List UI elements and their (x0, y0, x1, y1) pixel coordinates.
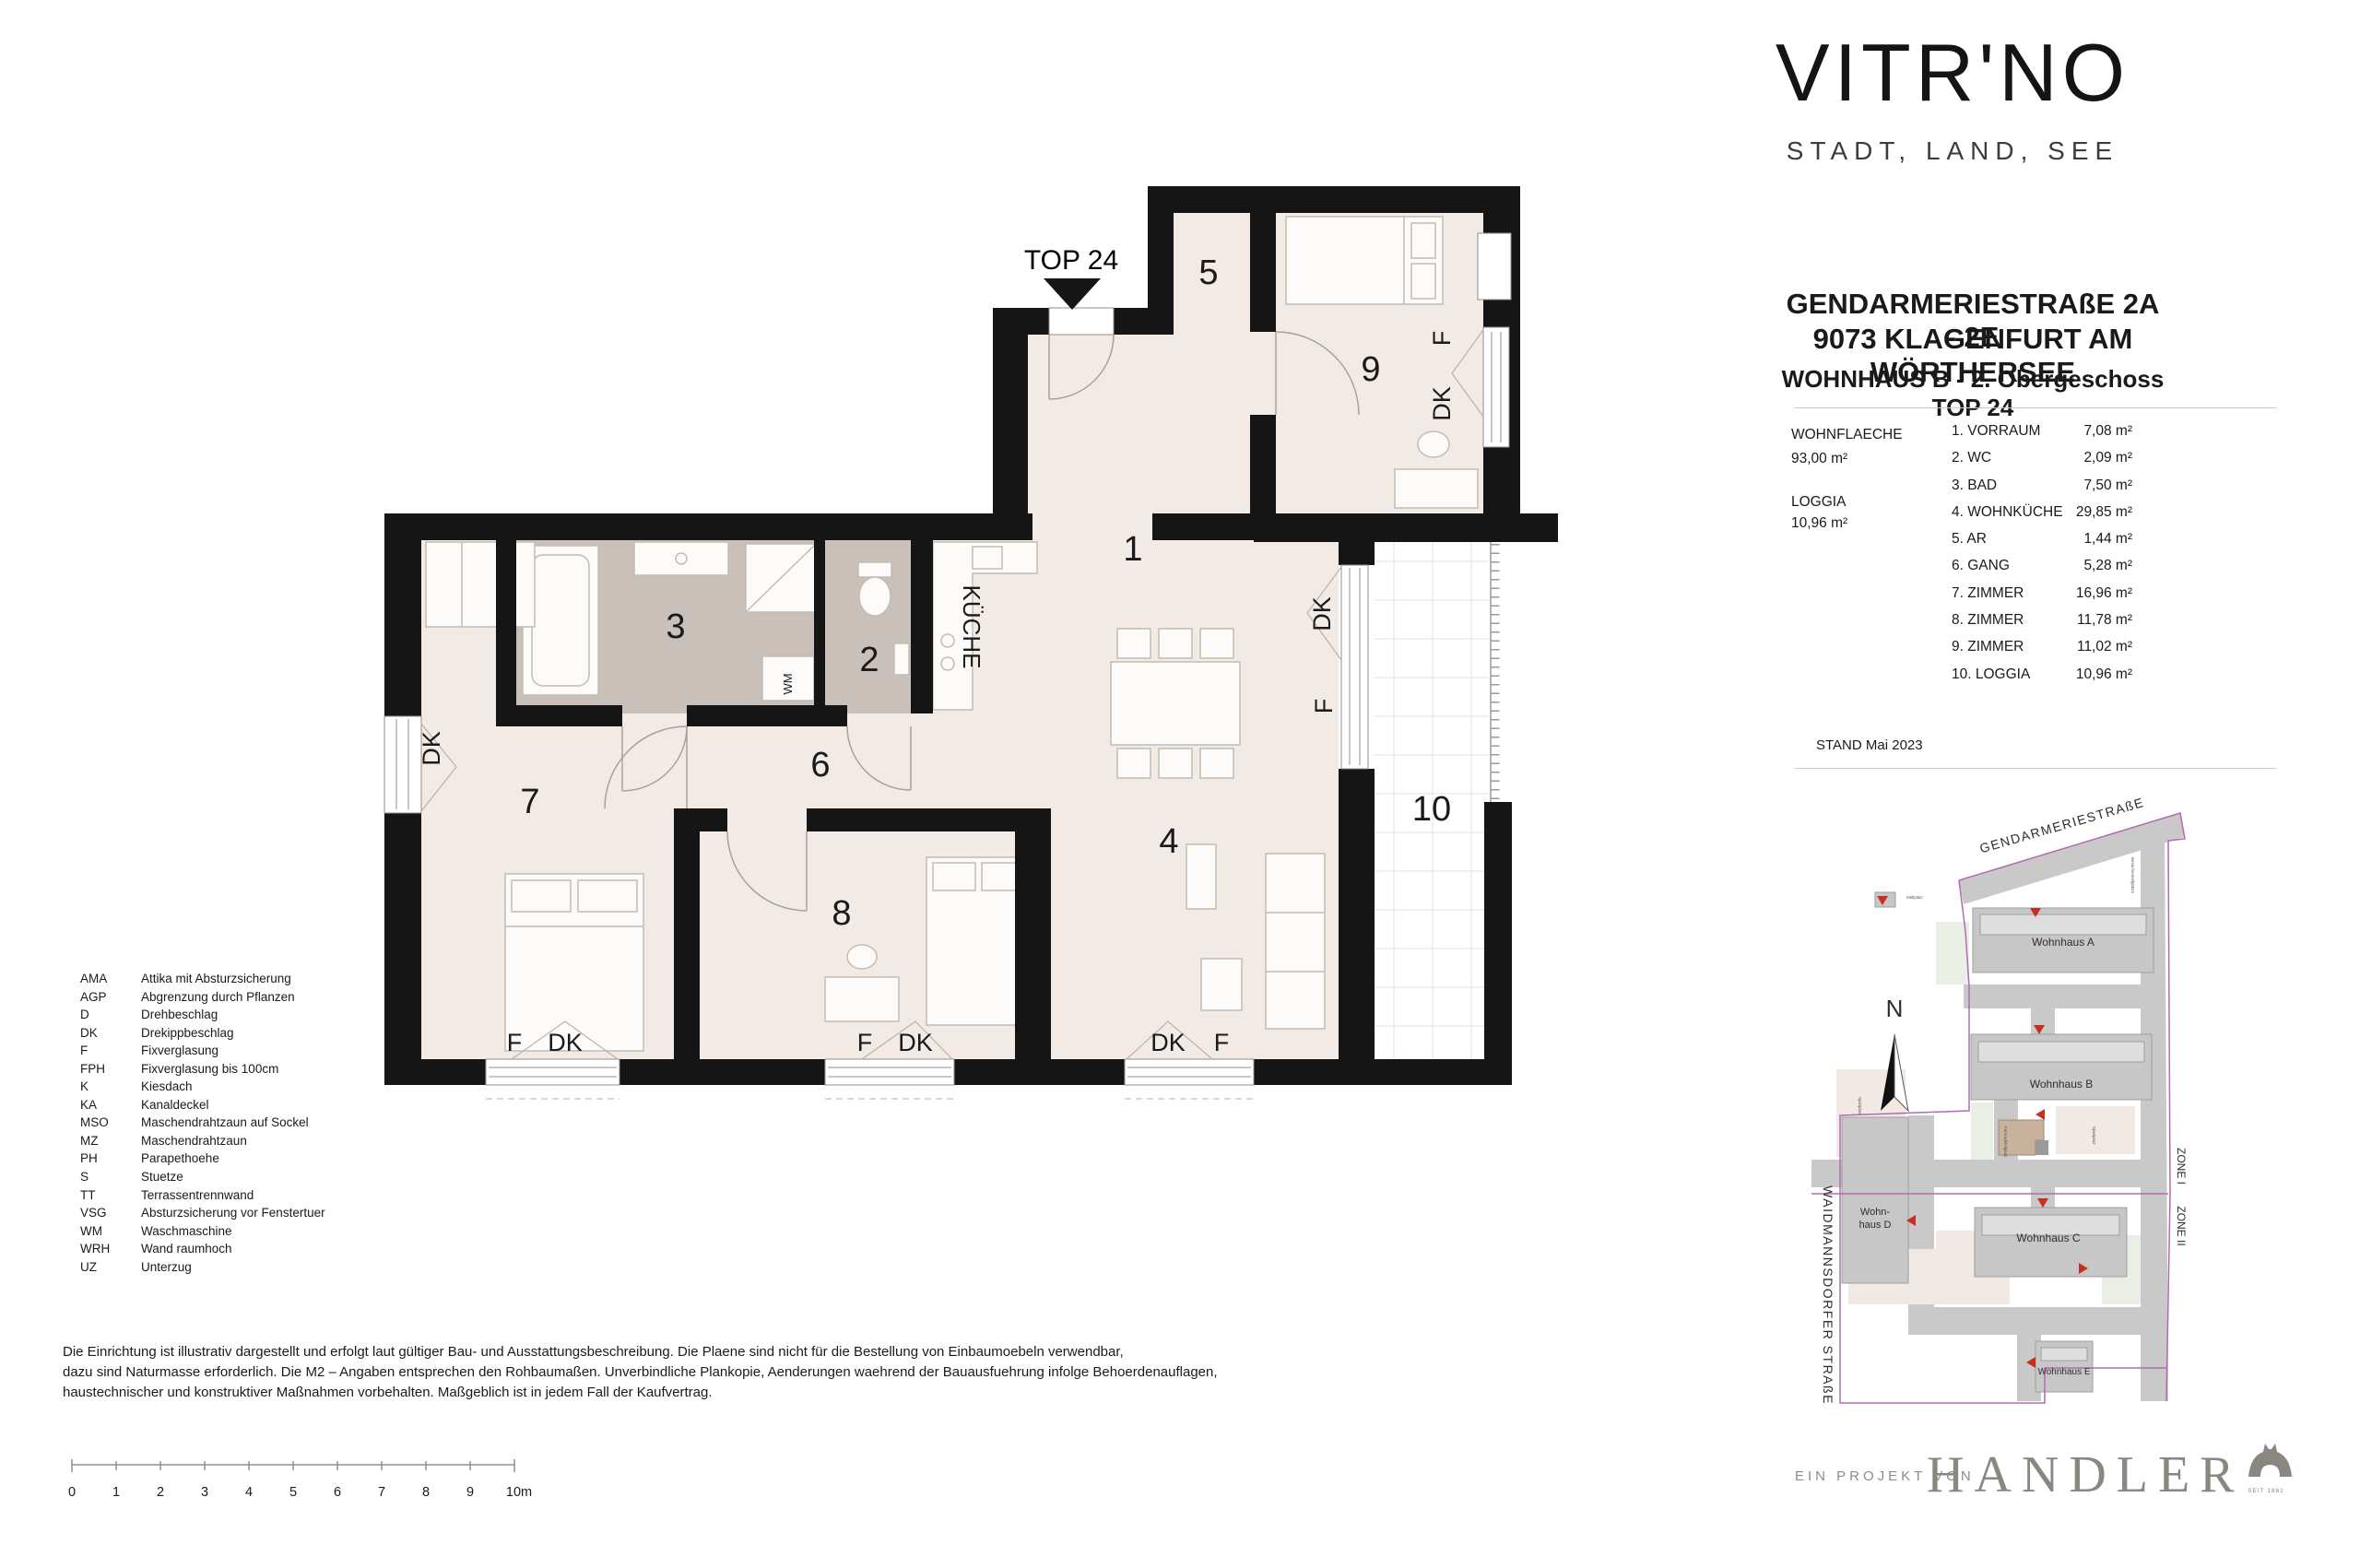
legend-abbr: DK (80, 1024, 141, 1043)
legend-text: Fixverglasung bis 100cm (141, 1060, 278, 1079)
loggia-value: 10,96 m² (1791, 515, 1847, 532)
room-area: 7,08 m² (2083, 422, 2132, 449)
room-name: 8. ZIMMER (1952, 611, 2024, 638)
legend-abbr: VSG (80, 1204, 141, 1222)
chair-room9 (1418, 431, 1449, 457)
legend-row: TTTerrassentrennwand (80, 1186, 325, 1205)
table-row: 8. ZIMMER11,78 m² (1952, 611, 2132, 638)
legend-text: Waschmaschine (141, 1222, 232, 1241)
room-area: 7,50 m² (2083, 477, 2132, 503)
legend-abbr: F (80, 1042, 141, 1060)
room-area: 16,96 m² (2076, 584, 2132, 611)
dining-table (1111, 662, 1240, 745)
room-label-2: 2 (859, 641, 879, 679)
coffee-table (1201, 959, 1242, 1010)
small-label: Besucherstellplätze (2130, 857, 2135, 894)
room-area: 2,09 m² (2083, 449, 2132, 476)
table-row: 6. GANG5,28 m² (1952, 557, 2132, 584)
legend-row: MZMaschendrahtzaun (80, 1132, 325, 1150)
building-d-label-2: haus D (1859, 1220, 1892, 1231)
legend-text: Fixverglasung (141, 1042, 218, 1060)
zone1-label: ZONE I (2175, 1148, 2188, 1185)
legend-row: VSGAbsturzsicherung vor Fenstertuer (80, 1204, 325, 1222)
wc-sink (894, 643, 909, 675)
room-name: 1. VORRAUM (1952, 422, 2040, 449)
table-row: 9. ZIMMER11,02 m² (1952, 638, 2132, 665)
room-label-4: 4 (1159, 822, 1178, 861)
room-name: 6. GANG (1952, 557, 2010, 584)
room-name: 7. ZIMMER (1952, 584, 2024, 611)
top24-label: TOP 24 (1024, 245, 1118, 276)
legend-abbr: TT (80, 1186, 141, 1205)
window-room9 (1483, 327, 1509, 447)
legend-abbr: WM (80, 1222, 141, 1241)
room-name: 10. LOGGIA (1952, 666, 2030, 692)
street-left-label: WAIDMANNSDORFER STRAßE (1821, 1185, 1835, 1405)
disclaimer-line: Die Einrichtung ist illustrativ dargeste… (63, 1342, 1218, 1362)
zone2-label: ZONE II (2175, 1206, 2188, 1245)
scale-tick-label: 5 (289, 1485, 297, 1500)
legend-text: Maschendrahtzaun auf Sockel (141, 1114, 309, 1132)
legend-row: FFixverglasung (80, 1042, 325, 1060)
legend-abbr: MZ (80, 1132, 141, 1150)
legend-row: AMAAttika mit Absturzsicherung (80, 970, 325, 988)
room-table: 1. VORRAUM7,08 m² 2. WC2,09 m² 3. BAD7,5… (1952, 422, 2132, 692)
scale-tick-label: 7 (378, 1485, 385, 1500)
window-room7-bottom (486, 1059, 619, 1085)
legend-row: AGPAbgrenzung durch Pflanzen (80, 988, 325, 1007)
legend-text: Drekippbeschlag (141, 1024, 234, 1043)
legend-row: SStuetze (80, 1168, 325, 1186)
building-d-label-1: Wohn- (1860, 1207, 1891, 1218)
handler-arch-icon (2246, 1440, 2294, 1482)
scale-tick-label: 4 (245, 1485, 253, 1500)
dk-label: DK (1308, 596, 1336, 631)
sofa (1266, 854, 1325, 1029)
window-room4-bottom (1125, 1059, 1254, 1085)
room-name: 2. WC (1952, 449, 1991, 476)
legend-abbr: D (80, 1006, 141, 1024)
scale-tick-label: 3 (201, 1485, 208, 1500)
table-row: 2. WC2,09 m² (1952, 449, 2132, 476)
floor-plan: TOP 24 1 2 3 4 5 6 7 8 9 10 F DK F DK DK… (235, 111, 1599, 1125)
entrance-door-opening (1049, 308, 1114, 335)
legend-abbr: KA (80, 1096, 141, 1114)
building-d (1842, 1117, 1908, 1283)
desk-room9 (1395, 469, 1478, 508)
room-label-5: 5 (1198, 253, 1218, 292)
wardrobe-room7 (426, 542, 535, 627)
legend-text: Kiesdach (141, 1078, 193, 1096)
small-label: Müllplatz (1906, 895, 1924, 900)
legend-abbr: S (80, 1168, 141, 1186)
chair-room8 (847, 945, 877, 969)
brand-tagline: STADT, LAND, SEE (1750, 136, 2155, 166)
room-area: 11,02 m² (2077, 638, 2132, 665)
legend-abbr: UZ (80, 1258, 141, 1277)
table-row: 10. LOGGIA10,96 m² (1952, 666, 2132, 692)
legend-text: Wand raumhoch (141, 1240, 232, 1258)
legend-abbr: MSO (80, 1114, 141, 1132)
room-name: 5. AR (1952, 530, 1987, 557)
scale-tick-label: 2 (157, 1485, 164, 1500)
legend-row: DKDrekippbeschlag (80, 1024, 325, 1043)
legend-row: WMWaschmaschine (80, 1222, 325, 1241)
legend-row: MSOMaschendrahtzaun auf Sockel (80, 1114, 325, 1132)
f-label: F (1214, 1029, 1230, 1056)
legend-abbr: WRH (80, 1240, 141, 1258)
small-label: Spielplatz (1858, 1097, 1862, 1115)
handler-logo: HANDLER (1927, 1445, 2245, 1504)
desk-room8 (825, 977, 899, 1021)
legend-text: Unterzug (141, 1258, 192, 1277)
dk-label: DK (548, 1029, 583, 1056)
room-area: 11,78 m² (2077, 611, 2132, 638)
legend-text: Drehbeschlag (141, 1006, 218, 1024)
loggia-parapet-line (1491, 542, 1495, 802)
disclaimer: Die Einrichtung ist illustrativ dargeste… (63, 1342, 1218, 1403)
legend-row: UZUnterzug (80, 1258, 325, 1277)
legend-row: DDrehbeschlag (80, 1006, 325, 1024)
dk-label: DK (898, 1029, 933, 1056)
room-label-7: 7 (520, 783, 539, 821)
room-area: 5,28 m² (2083, 557, 2132, 584)
table-row: 5. AR1,44 m² (1952, 530, 2132, 557)
wm-label: WM (781, 673, 795, 694)
room-name: 4. WOHNKÜCHE (1952, 503, 2063, 530)
legend-abbr: K (80, 1078, 141, 1096)
room-area: 29,85 m² (2076, 503, 2132, 530)
wohnflaeche-label: WOHNFLAECHE (1791, 427, 1903, 443)
legend-row: WRHWand raumhoch (80, 1240, 325, 1258)
legend-row: FPHFixverglasung bis 100cm (80, 1060, 325, 1079)
legend-row: PHParapethoehe (80, 1149, 325, 1168)
entrance-arrow-icon (1044, 278, 1101, 310)
dk-label: DK (1428, 386, 1456, 421)
legend-text: Attika mit Absturzsicherung (141, 970, 291, 988)
stand-date: STAND Mai 2023 (1816, 737, 1923, 753)
legend-row: KAKanaldeckel (80, 1096, 325, 1114)
divider-bottom (1795, 768, 2276, 769)
room-label-1: 1 (1123, 530, 1142, 569)
legend-text: Kanaldeckel (141, 1096, 209, 1114)
room-label-8: 8 (832, 894, 851, 933)
kueche-label: KÜCHE (958, 584, 985, 668)
room-label-9: 9 (1361, 350, 1380, 389)
room-label-3: 3 (666, 607, 685, 646)
room-label-6: 6 (810, 746, 830, 784)
unit-title: WOHNHAUS B - 2. Obergeschoss TOP 24 (1779, 365, 2166, 422)
disclaimer-line: dazu sind Naturmasse erforderlich. Die M… (63, 1362, 1218, 1383)
scale-tick-label: 9 (466, 1485, 474, 1500)
toilet (859, 577, 891, 616)
toilet-tank (858, 562, 891, 577)
room-label-10: 10 (1412, 790, 1451, 829)
legend-abbr: PH (80, 1149, 141, 1168)
room-area: 1,44 m² (2083, 530, 2132, 557)
f-label: F (857, 1029, 873, 1056)
legend-row: KKiesdach (80, 1078, 325, 1096)
legend-text: Parapethoehe (141, 1149, 219, 1168)
building-c-label: Wohnhaus C (2016, 1232, 2080, 1244)
scale-bar: 0 1 2 3 4 5 6 7 8 9 10m (55, 1452, 572, 1516)
entrance-marker: TOP 24 (1024, 245, 1118, 310)
building-a-label: Wohnhaus A (2032, 936, 2094, 949)
room-area: 10,96 m² (2076, 666, 2132, 692)
legend-text: Abgrenzung durch Pflanzen (141, 988, 295, 1007)
window-room8-bottom (825, 1059, 954, 1085)
wohnflaeche-value: 93,00 m² (1791, 451, 1847, 467)
f-label: F (1310, 699, 1338, 714)
disclaimer-line: haustechnischer und konstruktiver Maßnah… (63, 1383, 1218, 1403)
window-room7-left (384, 716, 421, 813)
f-label: F (507, 1029, 523, 1056)
legend-text: Terrassentrennwand (141, 1186, 254, 1205)
small-label: Spielplatz (2092, 1126, 2096, 1145)
legend: AMAAttika mit Absturzsicherung AGPAbgren… (80, 970, 325, 1276)
site-plan: GENDARMERIESTRAßE WAIDMANNSDORFER STRAßE… (1798, 793, 2360, 1410)
legend-text: Maschendrahtzaun (141, 1132, 247, 1150)
sideboard (1186, 844, 1216, 909)
dk-label: DK (1150, 1029, 1186, 1056)
page: TOP 24 1 2 3 4 5 6 7 8 9 10 F DK F DK DK… (0, 0, 2360, 1568)
north-label: N (1886, 995, 1904, 1022)
scale-tick-label: 1 (112, 1485, 120, 1500)
legend-abbr: AMA (80, 970, 141, 988)
dk-label: DK (418, 731, 445, 766)
legend-text: Absturzsicherung vor Fenstertuer (141, 1204, 325, 1222)
table-row: 3. BAD7,50 m² (1952, 477, 2132, 503)
scale-tick-label: 10m (506, 1485, 532, 1500)
scale-tick-label: 6 (334, 1485, 341, 1500)
f-label: F (1428, 331, 1456, 347)
brand-logo: VITR'NO (1750, 26, 2155, 120)
scale-tick-label: 0 (68, 1485, 76, 1500)
niche-room9 (1478, 233, 1511, 300)
loggia-label: LOGGIA (1791, 494, 1846, 511)
table-row: 1. VORRAUM7,08 m² (1952, 422, 2132, 449)
legend-text: Stuetze (141, 1168, 183, 1186)
legend-abbr: AGP (80, 988, 141, 1007)
legend-abbr: FPH (80, 1060, 141, 1079)
building-e-label: Wohnhaus E (2037, 1367, 2090, 1377)
window-room4-right (1341, 565, 1368, 769)
divider-top (1795, 407, 2276, 408)
small-label: Fahrradstellplatz (2003, 1126, 2008, 1158)
room-name: 9. ZIMMER (1952, 638, 2024, 665)
scale-labels: 0 1 2 3 4 5 6 7 8 9 10m (68, 1485, 532, 1500)
scale-tick-label: 8 (422, 1485, 430, 1500)
table-row: 7. ZIMMER16,96 m² (1952, 584, 2132, 611)
building-b-label: Wohnhaus B (2030, 1078, 2094, 1091)
handler-since-label: SEIT 1862 (2238, 1488, 2294, 1494)
table-row: 4. WOHNKÜCHE29,85 m² (1952, 503, 2132, 530)
room-name: 3. BAD (1952, 477, 1997, 503)
